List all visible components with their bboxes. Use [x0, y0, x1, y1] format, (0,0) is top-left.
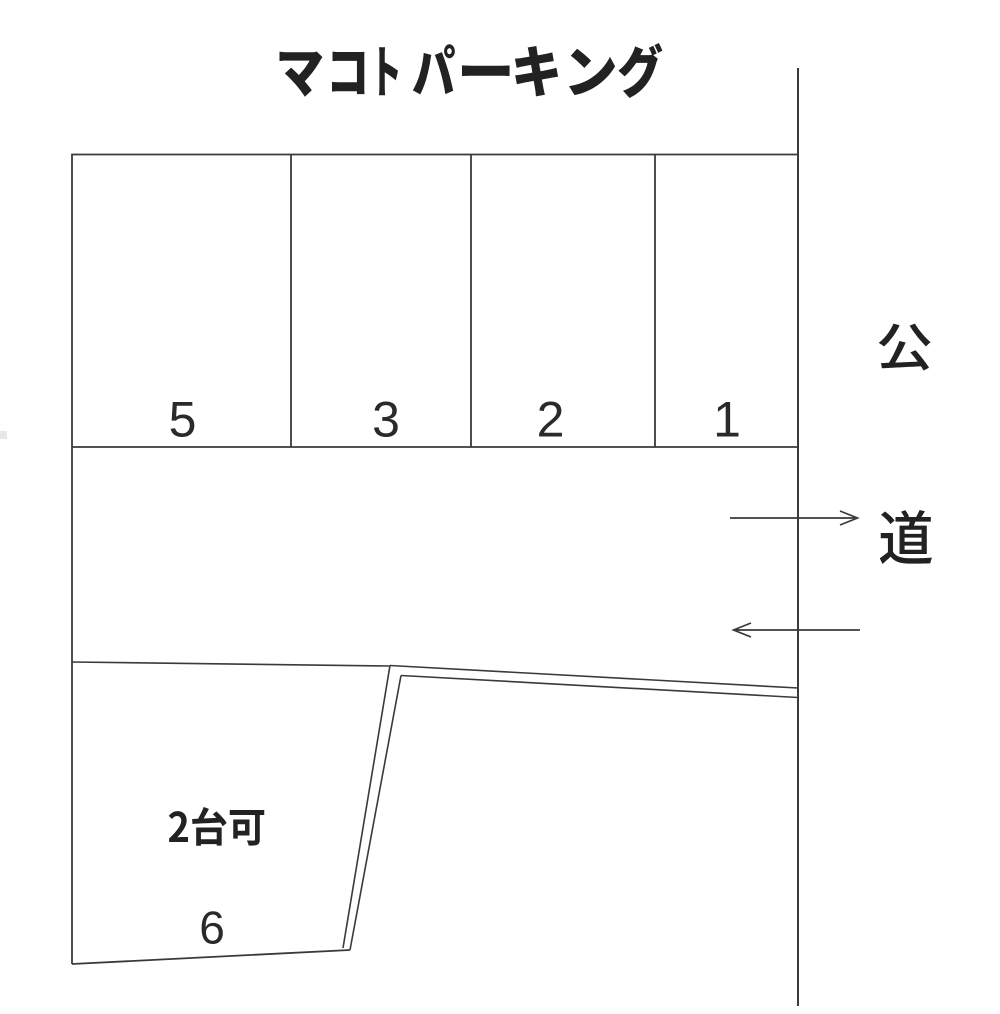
svg-text:5: 5: [169, 392, 197, 448]
svg-text:1: 1: [713, 392, 741, 448]
svg-text:2: 2: [537, 392, 565, 448]
svg-text:3: 3: [372, 392, 400, 448]
svg-text:6: 6: [199, 902, 225, 954]
